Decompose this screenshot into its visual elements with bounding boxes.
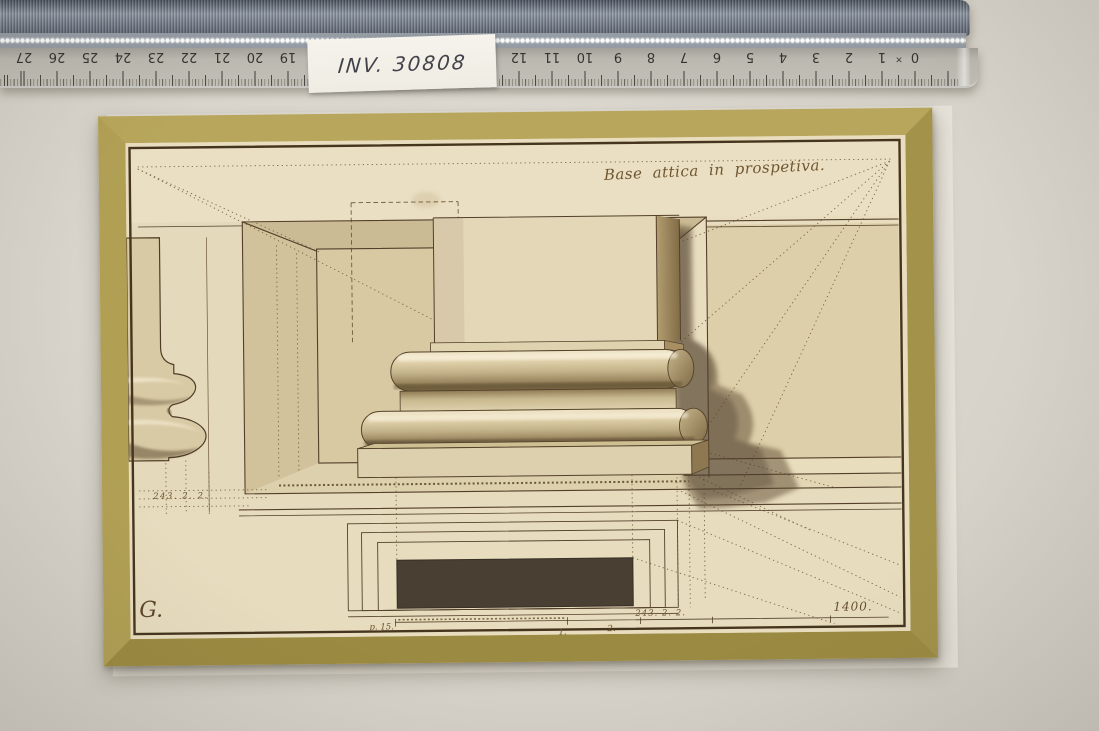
ruler-number-3: 3 bbox=[805, 49, 827, 64]
ruler-end-highlight bbox=[956, 48, 970, 86]
ruler-number-0: 0 bbox=[904, 49, 926, 64]
registry-mark-left: 243. 2. 2. bbox=[153, 491, 209, 502]
corner-number: 1400. bbox=[833, 599, 873, 613]
registry-mark-right: 243. 2. 2. bbox=[635, 608, 686, 619]
ruler-number-19: 19 bbox=[277, 49, 299, 64]
ruler-number-20: 20 bbox=[244, 49, 266, 64]
signature: G. bbox=[139, 598, 163, 623]
scale-bar-one: 1. bbox=[559, 628, 567, 638]
ruler-number-4: 4 bbox=[772, 49, 794, 64]
ruler-number-24: 24 bbox=[112, 49, 134, 64]
ruler-number-5: 5 bbox=[739, 49, 761, 64]
ruler-number-2: 2 bbox=[838, 49, 860, 64]
ruler-number-26: 26 bbox=[46, 49, 68, 64]
ruler-number-10: 10 bbox=[574, 49, 596, 64]
scale-bar-two: 2. bbox=[607, 624, 615, 634]
scale-bar-label: p. 15. bbox=[369, 622, 393, 632]
ruler-number-7: 7 bbox=[673, 49, 695, 64]
ruler-number-9: 9 bbox=[607, 49, 629, 64]
ruler-number-6: 6 bbox=[706, 49, 728, 64]
ruler-number-22: 22 bbox=[178, 49, 200, 64]
museum-photo: { "scene": { "backdrop_color": "#d9d5cc"… bbox=[0, 0, 1099, 731]
inventory-label: INV. 30808 bbox=[337, 49, 468, 77]
ruler-number-23: 23 bbox=[145, 49, 167, 64]
ruler-number-27: 27 bbox=[13, 49, 35, 64]
ruler-number-11: 11 bbox=[541, 49, 563, 64]
drawing-sheet: Base attica in prospetiva. G. 243. 2. 2.… bbox=[98, 108, 938, 667]
plan-dark-rectangle bbox=[397, 558, 633, 608]
ruler-number-8: 8 bbox=[640, 49, 662, 64]
ruler-metal-band bbox=[0, 0, 970, 36]
ruler-number-21: 21 bbox=[211, 49, 233, 64]
drawing-area: Base attica in prospetiva. G. 243. 2. 2.… bbox=[125, 135, 910, 639]
inventory-sticker: INV. 30808 bbox=[307, 34, 497, 93]
ruler-number-12: 12 bbox=[508, 49, 530, 64]
perspective-drawing bbox=[125, 135, 910, 639]
ruler-number-25: 25 bbox=[79, 49, 101, 64]
